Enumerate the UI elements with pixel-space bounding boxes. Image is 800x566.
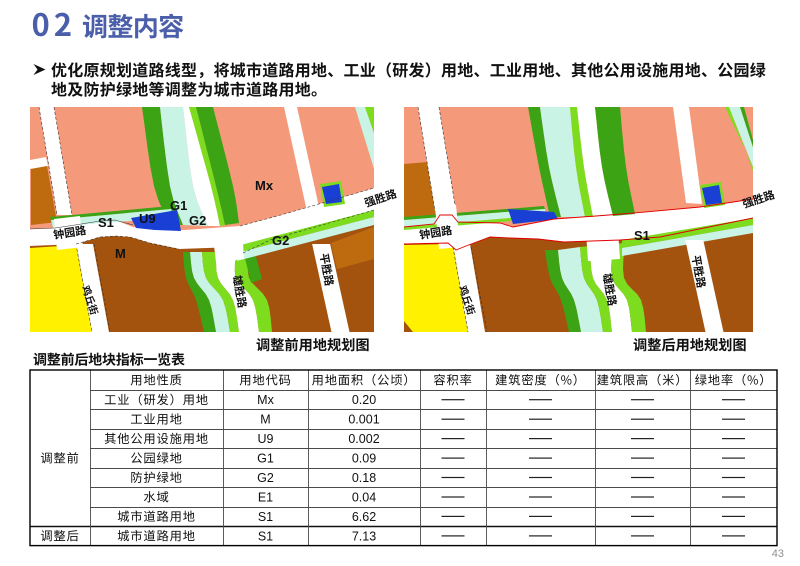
svg-text:0.001: 0.001 xyxy=(348,413,379,427)
svg-text:Mx: Mx xyxy=(255,178,274,193)
svg-text:M: M xyxy=(260,413,270,427)
svg-text:0.18: 0.18 xyxy=(352,471,376,485)
svg-text:S1: S1 xyxy=(258,510,273,524)
svg-text:S1: S1 xyxy=(98,215,114,230)
svg-text:43: 43 xyxy=(772,548,784,560)
svg-text:U9: U9 xyxy=(258,432,274,446)
svg-text:0.09: 0.09 xyxy=(352,452,376,466)
svg-text:6.62: 6.62 xyxy=(352,510,376,524)
svg-text:E1: E1 xyxy=(258,490,273,504)
svg-text:Mx: Mx xyxy=(257,393,274,407)
svg-text:G1: G1 xyxy=(170,198,187,213)
svg-text:G2: G2 xyxy=(257,471,274,485)
svg-text:0.04: 0.04 xyxy=(352,490,376,504)
svg-text:U9: U9 xyxy=(139,211,156,226)
svg-text:7.13: 7.13 xyxy=(352,529,376,543)
svg-text:G1: G1 xyxy=(257,452,274,466)
svg-text:M: M xyxy=(115,246,126,261)
svg-text:S1: S1 xyxy=(634,228,650,243)
svg-text:0.20: 0.20 xyxy=(352,393,376,407)
svg-text:0.002: 0.002 xyxy=(348,432,379,446)
svg-text:G2: G2 xyxy=(189,213,206,228)
svg-text:G2: G2 xyxy=(272,233,289,248)
svg-text:S1: S1 xyxy=(258,529,273,543)
